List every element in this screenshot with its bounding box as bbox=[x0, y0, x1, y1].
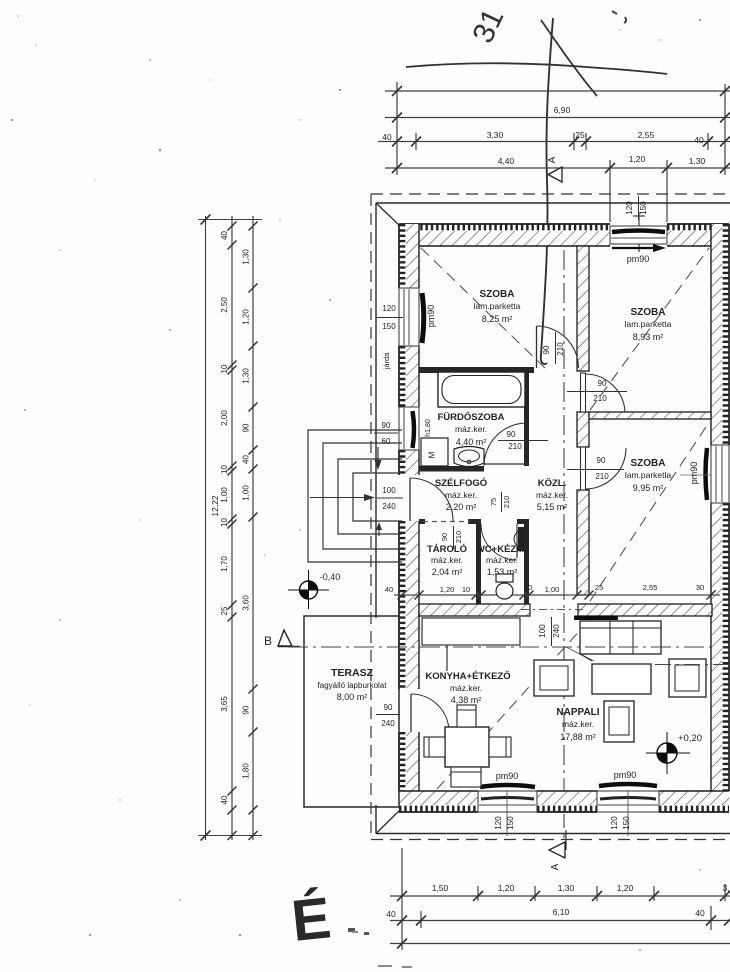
svg-text:40: 40 bbox=[386, 909, 396, 919]
svg-text:2,04 m²: 2,04 m² bbox=[432, 567, 463, 577]
svg-text:40: 40 bbox=[220, 795, 229, 804]
svg-text:10: 10 bbox=[524, 583, 532, 592]
svg-text:NAPPALI: NAPPALI bbox=[556, 707, 599, 718]
svg-text:A: A bbox=[547, 156, 558, 163]
svg-text:máz.ker.: máz.ker. bbox=[486, 555, 518, 565]
svg-text:8,93 m²: 8,93 m² bbox=[633, 332, 664, 342]
svg-text:4,40: 4,40 bbox=[498, 156, 515, 166]
svg-text:90: 90 bbox=[384, 703, 393, 712]
svg-text:pm90: pm90 bbox=[496, 771, 519, 781]
svg-text:lam.parketla: lam.parketla bbox=[625, 470, 672, 480]
svg-text:lam.parketta: lam.parketta bbox=[474, 301, 521, 311]
svg-text:120: 120 bbox=[625, 201, 634, 215]
svg-text:4,38 m²: 4,38 m² bbox=[451, 695, 482, 705]
svg-text:25: 25 bbox=[595, 583, 603, 592]
svg-text:SZOBA: SZOBA bbox=[631, 458, 666, 469]
svg-text:210: 210 bbox=[508, 442, 522, 451]
svg-text:210: 210 bbox=[595, 472, 609, 481]
svg-text:25: 25 bbox=[575, 130, 585, 140]
svg-text:2,55: 2,55 bbox=[643, 583, 658, 592]
svg-text:40: 40 bbox=[695, 908, 705, 918]
svg-text:SZOBA: SZOBA bbox=[631, 307, 666, 318]
svg-text:4,40 m²: 4,40 m² bbox=[456, 437, 487, 447]
svg-text:120: 120 bbox=[494, 816, 503, 830]
svg-text:SZÉLFOGÓ: SZÉLFOGÓ bbox=[435, 477, 487, 489]
svg-text:210: 210 bbox=[593, 394, 607, 403]
svg-text:8,00 m²: 8,00 m² bbox=[337, 692, 368, 702]
svg-text:-0,40: -0,40 bbox=[320, 572, 341, 582]
svg-text:8,25 m²: 8,25 m² bbox=[482, 314, 513, 324]
svg-text:2,00: 2,00 bbox=[220, 410, 229, 426]
svg-text:120: 120 bbox=[610, 816, 619, 830]
svg-text:É: É bbox=[289, 885, 334, 954]
svg-text:h1,80: h1,80 bbox=[425, 419, 432, 437]
svg-text:1,20: 1,20 bbox=[617, 883, 634, 893]
svg-text:FÜRDŐSZOBA: FÜRDŐSZOBA bbox=[437, 411, 504, 423]
svg-text:100: 100 bbox=[382, 486, 396, 495]
svg-text:TÁROLÓ: TÁROLÓ bbox=[427, 543, 467, 555]
svg-text:máz.ker.: máz.ker. bbox=[431, 555, 463, 565]
svg-text:1,20: 1,20 bbox=[498, 883, 515, 893]
svg-text:240: 240 bbox=[381, 719, 395, 728]
svg-text:5,15 m²: 5,15 m² bbox=[537, 502, 568, 512]
svg-text:A: A bbox=[550, 863, 561, 870]
svg-text:pm90: pm90 bbox=[426, 305, 436, 328]
svg-text:90: 90 bbox=[242, 423, 251, 432]
svg-text:KONYHA+ÉTKEZŐ: KONYHA+ÉTKEZŐ bbox=[425, 670, 510, 682]
svg-text:KÖZL.: KÖZL. bbox=[538, 478, 567, 489]
svg-text:3,30: 3,30 bbox=[487, 130, 504, 140]
svg-text:25: 25 bbox=[220, 606, 229, 615]
svg-text:210: 210 bbox=[454, 531, 463, 544]
svg-text:1,20: 1,20 bbox=[629, 154, 646, 164]
svg-text:máz.ker.: máz.ker. bbox=[450, 683, 482, 693]
svg-text:1,00: 1,00 bbox=[220, 487, 229, 503]
svg-text:1,50: 1,50 bbox=[432, 883, 449, 893]
svg-text:1,00: 1,00 bbox=[545, 585, 560, 594]
svg-text:40: 40 bbox=[694, 135, 704, 145]
svg-text:máz.ker.: máz.ker. bbox=[455, 424, 487, 434]
svg-text:240: 240 bbox=[382, 502, 396, 511]
svg-text:1,30: 1,30 bbox=[558, 883, 575, 893]
svg-text:2,55: 2,55 bbox=[638, 130, 655, 140]
svg-text:pm90: pm90 bbox=[627, 254, 650, 264]
svg-text:90: 90 bbox=[382, 421, 391, 430]
svg-text:10: 10 bbox=[220, 364, 229, 373]
svg-text:120: 120 bbox=[382, 304, 396, 313]
svg-text:90: 90 bbox=[598, 379, 607, 388]
svg-text:6,10: 6,10 bbox=[553, 907, 570, 917]
svg-text:10: 10 bbox=[462, 585, 470, 594]
svg-text:60: 60 bbox=[382, 437, 391, 446]
svg-text:150: 150 bbox=[506, 816, 515, 830]
svg-text:40: 40 bbox=[242, 455, 251, 464]
svg-text:90: 90 bbox=[242, 705, 251, 714]
svg-text:2,20 m²: 2,20 m² bbox=[446, 502, 477, 512]
svg-text:90: 90 bbox=[507, 430, 516, 439]
svg-text:75: 75 bbox=[489, 498, 498, 506]
svg-text:150: 150 bbox=[639, 201, 648, 215]
svg-text:lam.parketta: lam.parketta bbox=[625, 319, 672, 329]
svg-text:9,95 m²: 9,95 m² bbox=[633, 483, 664, 493]
svg-text:1,70: 1,70 bbox=[220, 556, 229, 572]
svg-text:150: 150 bbox=[382, 322, 396, 331]
svg-text:TERASZ: TERASZ bbox=[331, 667, 374, 679]
svg-text:150: 150 bbox=[622, 816, 631, 830]
svg-text:járda: járda bbox=[382, 352, 391, 371]
svg-text:2,50: 2,50 bbox=[220, 297, 229, 313]
svg-text:pm90: pm90 bbox=[614, 770, 637, 780]
svg-text:3,65: 3,65 bbox=[220, 696, 229, 712]
svg-text:máz.ker.: máz.ker. bbox=[445, 490, 477, 500]
svg-text:1,30: 1,30 bbox=[242, 249, 251, 265]
svg-text:40: 40 bbox=[220, 231, 229, 240]
svg-text:90: 90 bbox=[597, 456, 606, 465]
svg-text:pm90: pm90 bbox=[689, 462, 699, 485]
svg-text:240: 240 bbox=[552, 624, 561, 638]
svg-text:6,90: 6,90 bbox=[554, 105, 571, 115]
svg-text:30: 30 bbox=[696, 583, 704, 592]
svg-text:máz.ker.: máz.ker. bbox=[562, 719, 594, 729]
svg-text:3,: 3, bbox=[722, 883, 729, 893]
svg-text:3,60: 3,60 bbox=[242, 595, 251, 611]
svg-text:100: 100 bbox=[538, 624, 547, 638]
svg-text:1,20: 1,20 bbox=[440, 585, 455, 594]
svg-text:1,80: 1,80 bbox=[242, 763, 251, 779]
svg-text:SZOBA: SZOBA bbox=[480, 289, 515, 300]
svg-text:M: M bbox=[428, 451, 437, 458]
svg-text:40: 40 bbox=[385, 585, 393, 594]
svg-text:17,88 m²: 17,88 m² bbox=[560, 732, 596, 742]
svg-text:+0,20: +0,20 bbox=[678, 733, 702, 744]
svg-text:10: 10 bbox=[220, 518, 229, 527]
svg-text:1,30: 1,30 bbox=[689, 156, 706, 166]
svg-text:210: 210 bbox=[502, 496, 511, 509]
svg-text:B: B bbox=[264, 634, 272, 648]
svg-text:1,30: 1,30 bbox=[242, 368, 251, 384]
svg-text:fagyálló lapburkolat: fagyálló lapburkolat bbox=[318, 681, 388, 690]
svg-text:40: 40 bbox=[382, 132, 392, 142]
svg-text:máz.ker.: máz.ker. bbox=[536, 490, 568, 500]
svg-text:90: 90 bbox=[542, 345, 551, 354]
svg-text:12,22: 12,22 bbox=[210, 495, 220, 517]
svg-text:90: 90 bbox=[440, 533, 449, 541]
svg-text:1,20: 1,20 bbox=[242, 309, 251, 325]
svg-text:10: 10 bbox=[220, 465, 229, 474]
svg-text:1,00: 1,00 bbox=[242, 485, 251, 501]
